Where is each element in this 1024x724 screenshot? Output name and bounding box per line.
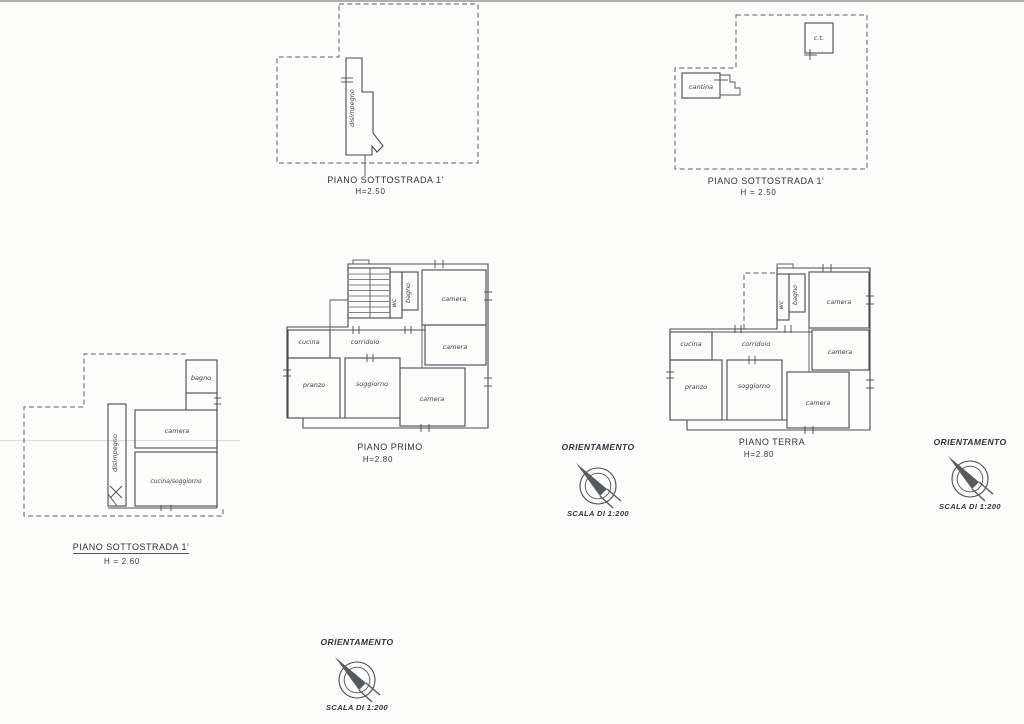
plan-height-sottostrada-c: H = 2.60 — [36, 557, 208, 566]
room-label-wc: wc — [390, 298, 398, 307]
room-label-camera: camera — [442, 295, 467, 303]
orientamento-label: ORIENTAMENTO — [556, 442, 640, 452]
room-label-pranzo: pranzo — [684, 383, 707, 391]
scan-edge-artifact — [0, 0, 1024, 2]
plan-title-sottostrada-a: PIANO SOTTOSTRADA 1' — [303, 175, 468, 185]
room-label-wc: wc — [777, 300, 785, 309]
room-label-soggiorno: soggiorno — [356, 380, 388, 388]
floor-plan-piano-terra: wc bagno camera camera camera cucina cor… — [663, 258, 878, 440]
room-label-camera: camera — [827, 298, 852, 306]
room-label-bagno: bagno — [191, 374, 211, 382]
plan-title-sottostrada-c: PIANO SOTTOSTRADA 1' — [36, 542, 226, 552]
plan-title-piano-terra: PIANO TERRA — [712, 437, 832, 447]
floor-plan-piano-primo: wc bagno camera camera camera cucina cor… — [283, 258, 495, 440]
room-label-cantina: cantina — [689, 83, 713, 91]
scale-label: SCALA DI 1:200 — [562, 509, 634, 518]
plan-title-piano-primo: PIANO PRIMO — [330, 442, 450, 452]
plan-height-sottostrada-b: H = 2.50 — [686, 188, 831, 197]
scanned-floor-plan-sheet: disimpegno PIANO SOTTOSTRADA 1' H=2.50 c… — [0, 0, 1024, 724]
orientamento-label: ORIENTAMENTO — [928, 437, 1012, 447]
floor-plan-sottostrada-b: cantina c.t. — [666, 6, 876, 178]
plan-height-piano-primo: H=2.80 — [330, 455, 426, 464]
room-label-cucina: cucina — [298, 338, 319, 346]
compass-icon — [942, 451, 998, 507]
plan-height-sottostrada-a: H=2.50 — [303, 187, 438, 196]
room-label-ct: c.t. — [814, 34, 824, 42]
orientamento-label: ORIENTAMENTO — [315, 637, 399, 647]
floor-plan-sottostrada-c: bagno camera cucina/soggiorno disimpegno — [16, 346, 238, 528]
room-label-camera: camera — [806, 399, 831, 407]
room-label-disimpegno: disimpegno — [348, 89, 356, 127]
room-label-disimpegno: disimpegno — [111, 434, 119, 472]
room-label-cucina-soggiorno: cucina/soggiorno — [150, 478, 202, 485]
scale-label: SCALA DI 1:200 — [321, 703, 393, 712]
scale-label: SCALA DI 1:200 — [934, 502, 1006, 511]
room-label-bagno: bagno — [404, 283, 412, 303]
room-label-corridoio: corridoio — [351, 338, 380, 346]
room-label-camera: camera — [828, 348, 853, 356]
compass-icon — [329, 652, 385, 708]
room-label-soggiorno: soggiorno — [738, 382, 770, 390]
room-label-camera: camera — [165, 427, 190, 435]
room-label-pranzo: pranzo — [302, 381, 325, 389]
room-label-camera: camera — [420, 395, 445, 403]
room-label-camera: camera — [443, 343, 468, 351]
room-label-corridoio: corridoio — [742, 340, 771, 348]
plan-height-piano-terra: H=2.80 — [711, 450, 807, 459]
room-label-cucina: cucina — [680, 340, 701, 348]
room-label-bagno: bagno — [791, 285, 799, 305]
plan-title-sottostrada-b: PIANO SOTTOSTRADA 1' — [686, 176, 846, 186]
compass-icon — [570, 458, 626, 514]
